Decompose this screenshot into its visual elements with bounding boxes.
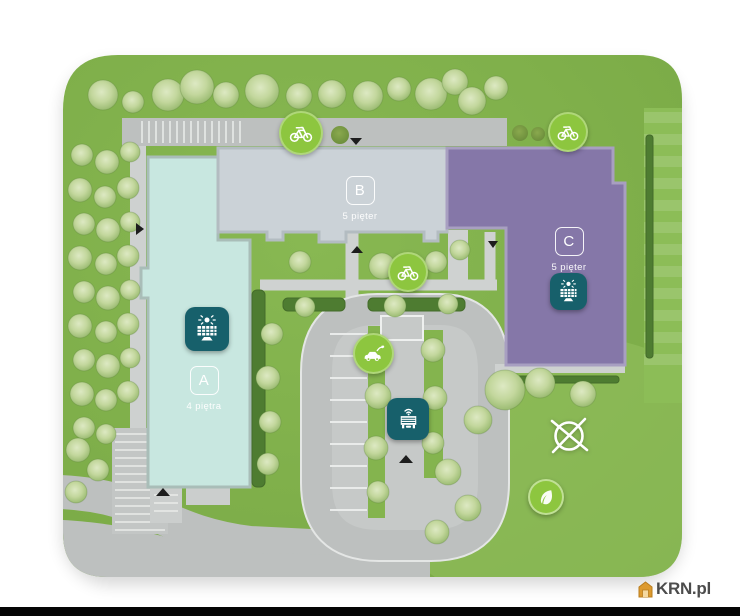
house-icon <box>638 581 653 598</box>
building-a-label: A 4 piętra <box>159 366 249 412</box>
krn-watermark-text: KRN.pl <box>656 579 711 599</box>
solar-panel-icon <box>555 278 582 305</box>
bicycle-badge-central <box>388 252 428 292</box>
bottom-black-bar <box>0 607 740 616</box>
building-b-letter: B <box>346 176 375 205</box>
solar-panel-badge-a <box>185 307 229 351</box>
building-c-label: C 5 pięter <box>524 227 614 273</box>
leaf-icon <box>534 485 558 509</box>
krn-watermark: KRN.pl <box>638 579 711 599</box>
ev-charging-badge <box>353 333 394 374</box>
solar-panel-icon <box>191 313 223 345</box>
garage-shelter-icon <box>393 404 424 435</box>
bicycle-badge-north-west <box>279 111 323 155</box>
compass-icon <box>541 408 597 464</box>
bicycle-icon <box>395 259 421 285</box>
bicycle-icon <box>287 119 315 147</box>
garage-shelter-badge <box>387 398 429 440</box>
building-b-floors: 5 pięter <box>343 211 378 222</box>
building-a-floors: 4 piętra <box>187 401 222 412</box>
terrain-map <box>0 0 740 616</box>
bicycle-icon <box>555 119 581 145</box>
building-c-letter: C <box>555 227 584 256</box>
leaf-badge <box>528 479 564 515</box>
ev-charging-icon <box>360 340 387 367</box>
bicycle-badge-north-east <box>548 112 588 152</box>
site-plan: A 4 piętra B 5 pięter C 5 pięter <box>0 0 740 616</box>
solar-panel-badge-c <box>550 273 587 310</box>
building-a-letter: A <box>190 366 219 395</box>
building-b-label: B 5 pięter <box>315 176 405 222</box>
building-c-floors: 5 pięter <box>552 262 587 273</box>
